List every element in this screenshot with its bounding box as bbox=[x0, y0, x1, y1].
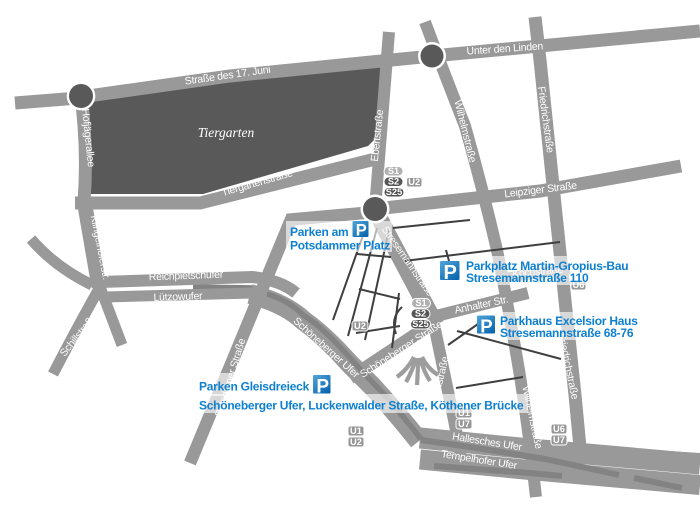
svg-text:S1: S1 bbox=[415, 298, 426, 308]
svg-text:Potsdammer Platz: Potsdammer Platz bbox=[290, 238, 390, 252]
svg-text:U7: U7 bbox=[553, 435, 565, 445]
svg-text:P: P bbox=[356, 222, 367, 240]
svg-text:Parken Gleisdreieck: Parken Gleisdreieck bbox=[199, 380, 310, 394]
svg-text:Tiergarten: Tiergarten bbox=[198, 125, 255, 140]
svg-text:S2: S2 bbox=[388, 177, 399, 187]
svg-text:S1: S1 bbox=[388, 166, 399, 176]
svg-text:S2: S2 bbox=[415, 309, 426, 319]
svg-text:Schöneberger Ufer, Luckenwalde: Schöneberger Ufer, Luckenwalder Straße, … bbox=[199, 399, 524, 413]
svg-text:U2: U2 bbox=[408, 177, 420, 187]
svg-text:Parken am: Parken am bbox=[290, 225, 348, 239]
svg-text:S25: S25 bbox=[386, 187, 403, 197]
svg-text:Stresemannstraße 68-76: Stresemannstraße 68-76 bbox=[500, 326, 634, 340]
svg-text:P: P bbox=[480, 316, 492, 337]
svg-text:U2: U2 bbox=[350, 437, 362, 447]
svg-text:Stresemannstraße 110: Stresemannstraße 110 bbox=[466, 271, 589, 285]
svg-text:P: P bbox=[316, 377, 329, 398]
svg-text:U7: U7 bbox=[458, 419, 470, 429]
svg-text:U2: U2 bbox=[354, 321, 366, 331]
svg-text:P: P bbox=[444, 262, 457, 284]
svg-text:S25: S25 bbox=[412, 319, 429, 329]
svg-text:U1: U1 bbox=[350, 426, 362, 436]
svg-text:Lützowufer: Lützowufer bbox=[153, 290, 203, 304]
svg-text:U6: U6 bbox=[553, 424, 565, 434]
